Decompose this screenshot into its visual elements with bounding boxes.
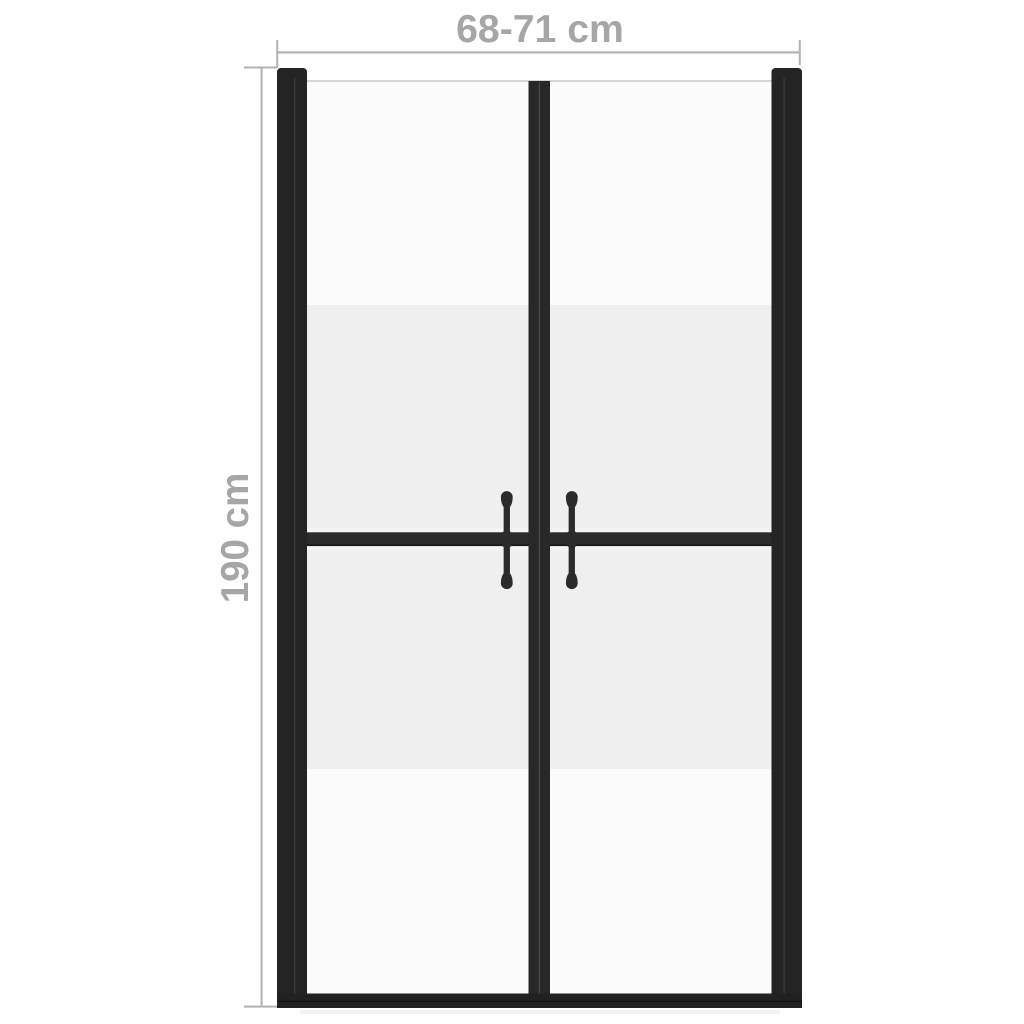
svg-text:68-71 cm: 68-71 cm xyxy=(456,8,624,51)
svg-text:190 cm: 190 cm xyxy=(214,473,257,604)
